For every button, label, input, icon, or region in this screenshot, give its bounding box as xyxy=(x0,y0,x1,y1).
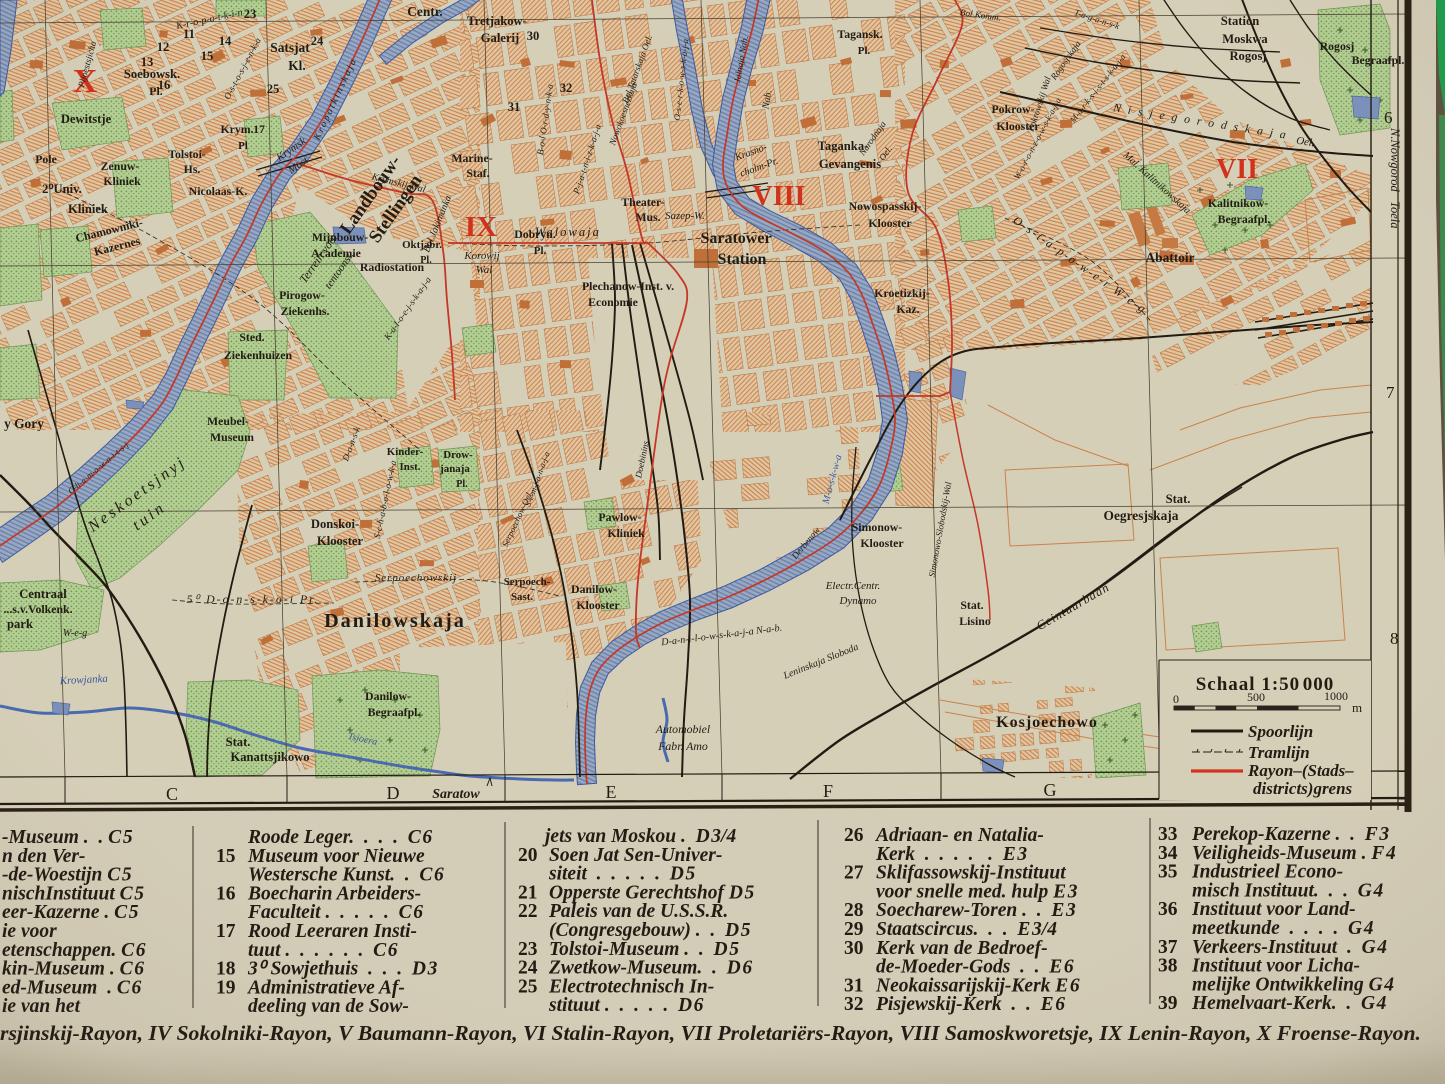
svg-text:Danilow-: Danilow- xyxy=(365,689,411,703)
svg-text:Schaal 1:50 000: Schaal 1:50 000 xyxy=(1196,674,1335,695)
svg-text:Dynamo: Dynamo xyxy=(839,595,877,607)
svg-text:Pl.: Pl. xyxy=(456,479,468,490)
svg-text:Kanattsjikowo: Kanattsjikowo xyxy=(230,750,309,764)
svg-text:Gevangenis: Gevangenis xyxy=(819,157,881,171)
svg-text:Klooster: Klooster xyxy=(868,216,911,230)
svg-text:Serpoech-: Serpoech- xyxy=(504,576,551,588)
svg-text:Nowospasskij-: Nowospasskij- xyxy=(849,199,922,213)
svg-text:Pisjewskij-Kerk . . E 6: Pisjewskij-Kerk . . E 6 xyxy=(875,994,1065,1015)
svg-text:Kosjoechowo: Kosjoechowo xyxy=(996,714,1098,731)
svg-text:Radiostation: Radiostation xyxy=(360,260,425,274)
svg-text:Pl.: Pl. xyxy=(534,245,547,257)
svg-text:Oktjabr.: Oktjabr. xyxy=(402,239,442,251)
svg-text:Klooster: Klooster xyxy=(860,536,903,550)
svg-text:Mus.: Mus. xyxy=(635,210,660,224)
svg-text:Centr.: Centr. xyxy=(407,4,443,19)
svg-text:35: 35 xyxy=(1158,862,1178,883)
svg-text:VII: VII xyxy=(1216,154,1258,185)
svg-text:D: D xyxy=(387,783,400,803)
svg-text:Kaz.: Kaz. xyxy=(896,302,919,316)
svg-text:Automobiel: Automobiel xyxy=(655,722,711,736)
svg-text:VIII: VIII xyxy=(753,181,806,212)
svg-text:Sast.: Sast. xyxy=(511,591,533,603)
svg-text:Pirogow-: Pirogow- xyxy=(279,288,325,302)
svg-text:Pole: Pole xyxy=(35,152,57,166)
svg-text:Station: Station xyxy=(718,251,767,268)
svg-text:32: 32 xyxy=(560,81,573,95)
svg-text:Inst.: Inst. xyxy=(400,461,421,473)
svg-text:Danilow-: Danilow- xyxy=(571,582,617,596)
svg-text:Begraafpl.: Begraafpl. xyxy=(1352,53,1405,67)
svg-text:Dewitstje: Dewitstje xyxy=(61,112,112,126)
svg-text:Museum: Museum xyxy=(210,430,254,444)
svg-text:8: 8 xyxy=(1390,629,1399,648)
svg-text:Ziekenhs.: Ziekenhs. xyxy=(281,304,330,318)
svg-text:...s.v.Volkenk.: ...s.v.Volkenk. xyxy=(3,602,72,616)
svg-text:F: F xyxy=(823,781,833,801)
svg-text:Donskoi-: Donskoi- xyxy=(311,517,359,531)
svg-text:20: 20 xyxy=(518,845,538,866)
svg-text:Sazep-W.: Sazep-W. xyxy=(665,210,705,222)
svg-text:Ziekenhuizen: Ziekenhuizen xyxy=(224,348,293,362)
svg-text:26: 26 xyxy=(844,825,864,846)
svg-text:Nicolaas-K.: Nicolaas-K. xyxy=(189,184,248,198)
svg-text:Electr.Centr.: Electr.Centr. xyxy=(825,580,880,592)
svg-text:Stat.: Stat. xyxy=(960,598,983,612)
svg-text:Rogosj: Rogosj xyxy=(1320,39,1355,53)
svg-text:Stat.: Stat. xyxy=(226,735,251,749)
svg-text:Pl.: Pl. xyxy=(149,84,162,98)
svg-text:Krym.: Krym. xyxy=(220,122,253,136)
svg-text:Tagansk.: Tagansk. xyxy=(837,27,882,41)
svg-text:Pawlow-: Pawlow- xyxy=(598,510,641,524)
svg-text:Klooster: Klooster xyxy=(317,534,364,548)
svg-text:E: E xyxy=(606,782,617,802)
svg-text:Kroetizkij-: Kroetizkij- xyxy=(874,286,930,300)
svg-text:12: 12 xyxy=(157,40,170,54)
svg-text:stituut . . . . . D 6: stituut . . . . . D 6 xyxy=(548,995,704,1016)
svg-text:22: 22 xyxy=(518,901,538,922)
svg-text:Station: Station xyxy=(1221,14,1260,28)
svg-text:Oegresjskaja: Oegresjskaja xyxy=(1104,508,1179,523)
svg-text:24: 24 xyxy=(311,34,324,48)
svg-text:17: 17 xyxy=(216,921,236,942)
svg-text:Fabr. Amo: Fabr. Amo xyxy=(657,739,708,753)
svg-text:Academie: Academie xyxy=(311,246,361,260)
svg-text:39: 39 xyxy=(1158,993,1178,1014)
svg-text:6: 6 xyxy=(1384,108,1393,127)
svg-text:ie van het: ie van het xyxy=(2,996,81,1017)
svg-text:Staf.: Staf. xyxy=(466,166,489,180)
svg-text:Theater-: Theater- xyxy=(621,195,665,209)
svg-text:Meubel-: Meubel- xyxy=(207,414,249,428)
svg-text:Saratower: Saratower xyxy=(700,230,771,247)
svg-text:Mijnbouw-: Mijnbouw- xyxy=(312,230,368,244)
svg-text:Moskwa: Moskwa xyxy=(1222,32,1268,46)
svg-text:park: park xyxy=(7,617,33,631)
svg-text:Kl.: Kl. xyxy=(288,58,305,73)
svg-text:7: 7 xyxy=(1386,383,1395,402)
svg-text:38: 38 xyxy=(1158,956,1178,977)
svg-text:Saratow: Saratow xyxy=(432,787,480,802)
svg-text:Pl: Pl xyxy=(238,140,248,152)
svg-text:27: 27 xyxy=(844,863,864,884)
svg-text:m: m xyxy=(1352,700,1362,715)
svg-text:janaja: janaja xyxy=(439,463,470,475)
svg-text:25: 25 xyxy=(267,82,280,96)
svg-text:5⁰ D-o-n-s-k-o-i Pr.: 5⁰ D-o-n-s-k-o-i Pr. xyxy=(187,592,320,606)
svg-text:0: 0 xyxy=(1173,692,1179,706)
svg-text:y Gory: y Gory xyxy=(4,416,44,431)
svg-text:Kliniek: Kliniek xyxy=(103,174,141,188)
svg-text:Tolstoi-: Tolstoi- xyxy=(168,147,206,161)
svg-text:15: 15 xyxy=(216,846,236,867)
svg-text:Rayon–(Stads–: Rayon–(Stads– xyxy=(1247,761,1354,780)
svg-text:Klooster: Klooster xyxy=(576,598,619,612)
svg-text:Sted.: Sted. xyxy=(239,330,264,344)
svg-text:Marine-: Marine- xyxy=(451,151,492,165)
svg-text:Satsjat: Satsjat xyxy=(270,40,310,55)
svg-text:500: 500 xyxy=(1247,690,1265,704)
svg-text:Serpoechowskij: Serpoechowskij xyxy=(375,572,457,584)
svg-text:C: C xyxy=(166,784,178,804)
svg-text:Spoorlijn: Spoorlijn xyxy=(1248,722,1313,741)
svg-text:14: 14 xyxy=(219,34,232,48)
svg-text:Pl.: Pl. xyxy=(858,45,871,57)
svg-text:deeling van de Sow-: deeling van de Sow- xyxy=(248,996,409,1017)
svg-text:Pl.: Pl. xyxy=(420,255,432,266)
svg-text:2⁰Univ.: 2⁰Univ. xyxy=(42,182,82,196)
svg-text:19: 19 xyxy=(216,977,236,998)
svg-text:Abattoir: Abattoir xyxy=(1145,250,1194,265)
svg-text:Stat.: Stat. xyxy=(1166,492,1191,506)
svg-text:Plechanow-Inst. v.: Plechanow-Inst. v. xyxy=(582,279,674,293)
svg-text:Pokrow-: Pokrow- xyxy=(991,102,1034,116)
svg-text:30: 30 xyxy=(844,938,864,959)
svg-text:1000: 1000 xyxy=(1324,689,1348,703)
svg-text:23: 23 xyxy=(244,7,257,21)
svg-text:17: 17 xyxy=(253,122,265,136)
svg-text:36: 36 xyxy=(1158,899,1178,920)
svg-text:30: 30 xyxy=(527,29,540,43)
svg-text:25: 25 xyxy=(518,976,538,997)
svg-text:Begraafpl.: Begraafpl. xyxy=(1218,212,1271,226)
svg-text:Centraal: Centraal xyxy=(19,587,67,601)
svg-text:Kliniek: Kliniek xyxy=(607,526,645,540)
svg-text:Kinder-: Kinder- xyxy=(387,446,424,458)
svg-text:Danilowskaja: Danilowskaja xyxy=(324,610,466,632)
svg-text:Korowij: Korowij xyxy=(463,250,499,262)
svg-text:Soebowsk.: Soebowsk. xyxy=(124,67,180,81)
svg-text:Walowaja: Walowaja xyxy=(535,225,601,239)
svg-text:W-e-g: W-e-g xyxy=(63,628,87,639)
svg-text:Lisino: Lisino xyxy=(959,614,991,628)
svg-text:Hemelvaart-Kerk. . G 4: Hemelvaart-Kerk. . G 4 xyxy=(1191,993,1387,1014)
svg-text:Kalitnikow-: Kalitnikow- xyxy=(1208,196,1268,210)
svg-text:Tramlijn: Tramlijn xyxy=(1248,743,1310,762)
svg-text:Zenuw-: Zenuw- xyxy=(101,159,140,173)
svg-text:Economie: Economie xyxy=(588,295,638,309)
svg-text:N.Nowgorod Toela: N.Nowgorod Toela xyxy=(1388,127,1402,229)
svg-text:Tretjakow-: Tretjakow- xyxy=(467,14,527,28)
svg-text:16: 16 xyxy=(216,883,236,904)
svg-text:Begraafpl.: Begraafpl. xyxy=(368,705,421,719)
svg-text:G: G xyxy=(1044,780,1057,800)
svg-text:Kliniek: Kliniek xyxy=(68,202,108,216)
svg-text:districts)grens: districts)grens xyxy=(1253,779,1353,798)
svg-text:Rogosj: Rogosj xyxy=(1229,49,1266,63)
svg-text:31: 31 xyxy=(508,100,521,114)
svg-text:IX: IX xyxy=(465,211,497,243)
svg-text:32: 32 xyxy=(844,994,864,1015)
svg-text:15: 15 xyxy=(201,49,214,63)
svg-text:Drow-: Drow- xyxy=(443,449,473,461)
svg-text:Hs.: Hs. xyxy=(184,162,201,176)
svg-text:Galerij: Galerij xyxy=(481,31,519,45)
svg-text:Simonow-: Simonow- xyxy=(852,520,903,534)
svg-text:Wal: Wal xyxy=(476,264,493,276)
